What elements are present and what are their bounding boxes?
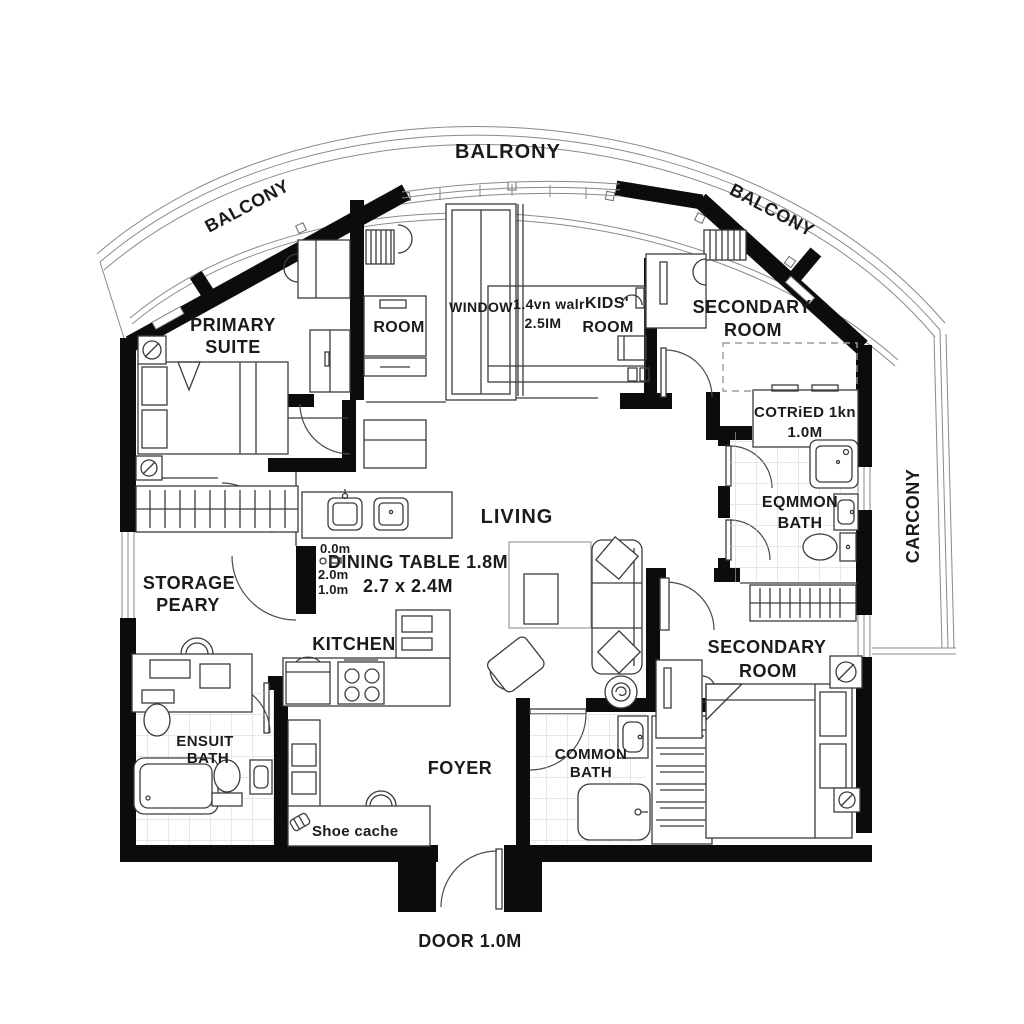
room-chair: [398, 225, 412, 253]
label-ensuite-1: ENSUIT: [176, 733, 233, 750]
label-dining-2: 2.7 x 2.4M: [363, 576, 453, 596]
label-entry-door: DOOR 1.0M: [418, 931, 522, 951]
room-shelf-hatched: [366, 230, 394, 264]
label-wall-note-1: 1.4vn walr: [513, 296, 585, 312]
entry-door-leaf: [496, 849, 502, 909]
ceiling-fan-icon: [830, 656, 862, 688]
secondary-bed: [706, 684, 852, 838]
label-primary-suite-2: SUITE: [205, 337, 261, 357]
kitchen: KITCHEN: [283, 610, 450, 706]
label-shoe-cache: Shoe cache: [312, 823, 398, 840]
stool: [366, 791, 396, 806]
label-room: ROOM: [373, 319, 424, 336]
label-dining-1: DINING TABLE 1.8M: [328, 552, 508, 572]
dashed-zone: [723, 343, 857, 391]
label-living: LIVING: [481, 506, 554, 528]
label-foyer: FOYER: [428, 758, 493, 778]
dim-1: 1.0m: [318, 582, 348, 597]
side-table: [605, 676, 637, 708]
label-ensuite-2: BATH: [187, 750, 229, 767]
primary-suite: PRIMARY SUITE: [136, 315, 298, 532]
ceiling-fan-icon: [136, 456, 162, 480]
label-secondary-top-2: ROOM: [724, 320, 782, 340]
cotried-cabinet: COTRiED 1kn 1.0M: [753, 385, 858, 447]
ceiling-fan-icon: [834, 788, 860, 812]
primary-closet-hangers: [136, 486, 298, 532]
entry-door-swing: [441, 851, 497, 907]
fridge: [286, 657, 330, 704]
left-window: [120, 532, 136, 618]
label-wall-note-2: 2.5IM: [524, 315, 561, 331]
label-storage-1: STORAGE: [143, 573, 235, 593]
label-kids-room-1: KIDS': [585, 295, 629, 312]
label-storage-2: PEARY: [156, 595, 220, 615]
floor-plan-drawing: PRIMARY SUITE: [0, 0, 1024, 1024]
wardrobe-hangers: [750, 585, 856, 621]
tv-panel: [660, 578, 669, 630]
label-secondary-bottom-2: ROOM: [739, 661, 797, 681]
label-cotried-2: 1.0M: [788, 424, 823, 441]
label-secondary-top-1: SECONDARY: [693, 297, 812, 317]
label-kitchen: KITCHEN: [312, 634, 396, 654]
dim-2: 2.0m: [318, 567, 348, 582]
label-primary-suite-1: PRIMARY: [190, 315, 276, 335]
ensuite-sink: [250, 760, 272, 794]
ceiling-fan-icon: [138, 336, 166, 364]
right-window-2: [856, 615, 872, 657]
label-carcony: CARCONY: [903, 469, 923, 564]
label-eqmmon-2: BATH: [778, 515, 823, 532]
shelf-hatched: [704, 230, 746, 260]
window-panel: WINDOW: [446, 204, 516, 400]
label-common-bath-2: BATH: [570, 764, 612, 781]
label-balcony-left: BALCONY: [201, 175, 292, 236]
toilet: [803, 533, 856, 561]
coffee-table: [524, 574, 558, 624]
stove: [338, 660, 384, 704]
room-cabinet-left: [310, 330, 350, 392]
label-cotried-1: COTRiED 1kn: [754, 404, 856, 421]
kitchen-counter-right: [396, 610, 450, 658]
living-room: LIVING: [481, 506, 671, 708]
door-leaf-common-bath: [530, 709, 586, 714]
label-eqmmon-1: EQMMON: [762, 494, 838, 511]
dimension-stack: 0.0m 2.0m 1.0m: [318, 541, 350, 597]
floor-plan-page: PRIMARY SUITE: [0, 0, 1024, 1024]
label-balcony-top: BALRONY: [455, 141, 561, 163]
label-kids-room-2: ROOM: [582, 319, 633, 336]
kids-table: [618, 336, 646, 360]
island-sink-2: [374, 498, 408, 530]
door-storage: [232, 556, 296, 620]
dim-0: 0.0m: [320, 541, 350, 556]
shower: [810, 440, 858, 488]
foyer: Shoe cache FOYER: [288, 720, 492, 846]
label-window: WINDOW: [449, 299, 513, 315]
label-secondary-bottom-1: SECONDARY: [708, 637, 827, 657]
dining-island: DINING TABLE 1.8M 2.7 x 2.4M 0.0m 2.0m 1…: [302, 489, 508, 597]
primary-bed: [138, 362, 288, 454]
door-leaf-kids: [661, 348, 666, 397]
door-bottom-secondary: [666, 582, 714, 630]
label-common-bath-1: COMMON: [555, 746, 627, 763]
door-top-secondary: [666, 350, 712, 397]
common-bathtub: [578, 784, 650, 840]
armchair: [482, 635, 546, 697]
